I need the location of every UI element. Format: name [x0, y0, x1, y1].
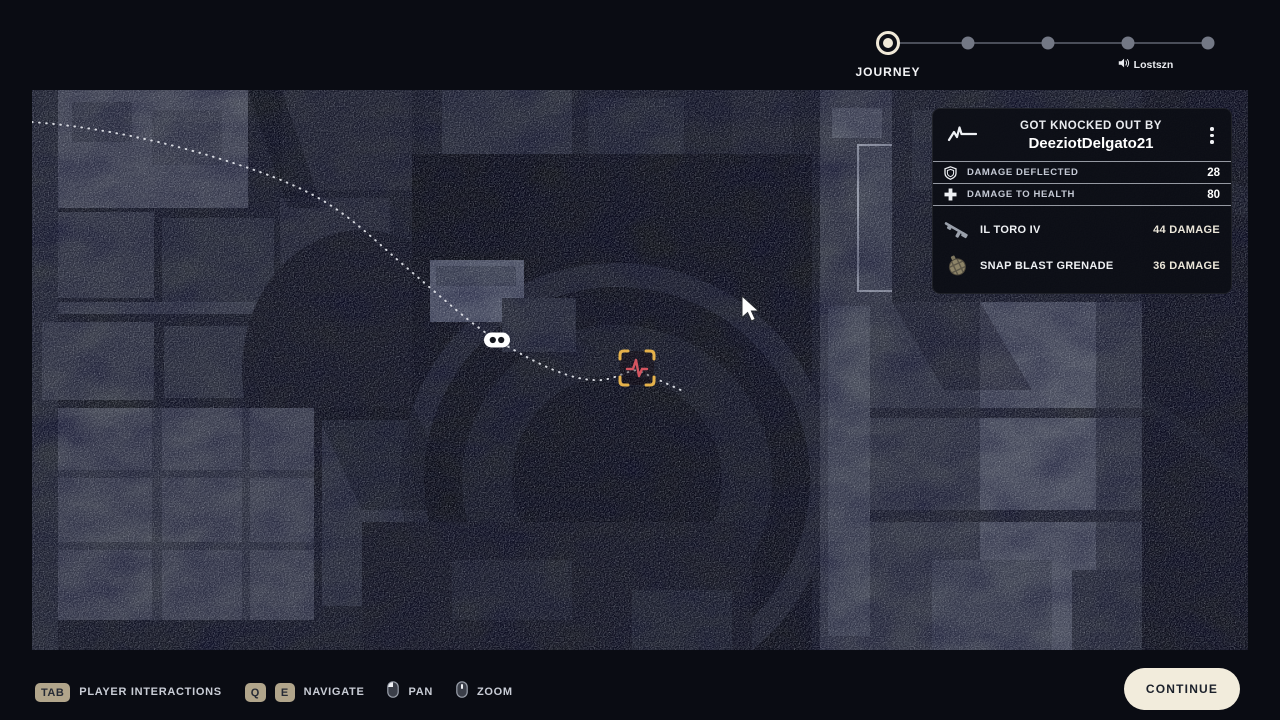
timeline-step-journey[interactable] — [876, 31, 900, 55]
stat-value: 80 — [1207, 189, 1220, 201]
weapons-list: IL TORO IV 44 DAMAGE SNAP BLAST GRENADE — [933, 205, 1231, 293]
weapon-name: SNAP BLAST GRENADE — [980, 260, 1145, 272]
weapon-row: SNAP BLAST GRENADE 36 DAMAGE — [942, 252, 1220, 280]
tab-keycap: TAB — [35, 683, 70, 702]
grenade-icon — [942, 253, 972, 279]
shield-icon — [944, 166, 958, 180]
journey-timeline — [876, 31, 1220, 55]
rifle-icon — [942, 217, 972, 243]
hint-player-interactions: TAB PLAYER INTERACTIONS — [35, 683, 222, 702]
stat-value: 28 — [1207, 167, 1220, 179]
knockout-panel: GOT KNOCKED OUT BY DeeziotDelgato21 DAMA… — [932, 108, 1232, 294]
hint-label: PLAYER INTERACTIONS — [79, 686, 221, 698]
audio-player-name: Lostszn — [1134, 59, 1174, 71]
weapon-damage: 44 DAMAGE — [1153, 224, 1220, 236]
weapon-damage: 36 DAMAGE — [1153, 260, 1220, 272]
pulse-icon — [947, 119, 979, 152]
mouse-pan-icon — [387, 681, 399, 703]
stat-row-damage-to-health: DAMAGE TO HEALTH 80 — [933, 183, 1231, 205]
q-keycap: Q — [245, 683, 266, 702]
stat-label: DAMAGE DEFLECTED — [967, 167, 1198, 178]
weapon-row: IL TORO IV 44 DAMAGE — [942, 216, 1220, 244]
audio-player-label: Lostszn — [1119, 58, 1174, 71]
kebab-menu-icon[interactable] — [1205, 125, 1219, 146]
knockout-panel-header: GOT KNOCKED OUT BY DeeziotDelgato21 — [933, 109, 1231, 161]
timeline-step-3[interactable] — [1042, 37, 1055, 50]
timeline-active-label: JOURNEY — [855, 65, 920, 79]
killer-player-name: DeeziotDelgato21 — [979, 135, 1203, 152]
continue-button[interactable]: CONTINUE — [1124, 668, 1240, 710]
mouse-zoom-icon — [456, 681, 468, 703]
stat-label: DAMAGE TO HEALTH — [967, 189, 1198, 200]
keybind-hints-bar: TAB PLAYER INTERACTIONS Q E NAVIGATE PAN — [35, 681, 513, 703]
hint-navigate: Q E NAVIGATE — [245, 683, 365, 702]
timeline-step-5[interactable] — [1202, 37, 1215, 50]
hint-pan: PAN — [387, 681, 433, 703]
timeline-step-2[interactable] — [962, 37, 975, 50]
weapon-name: IL TORO IV — [980, 224, 1145, 236]
downed-player-marker — [484, 333, 510, 348]
stat-row-damage-deflected: DAMAGE DEFLECTED 28 — [933, 161, 1231, 183]
health-cross-icon — [944, 188, 958, 201]
hint-label: NAVIGATE — [304, 686, 365, 698]
death-recap-screen: JOURNEY Lostszn — [0, 0, 1280, 720]
hint-label: PAN — [408, 686, 433, 698]
hint-zoom: ZOOM — [456, 681, 513, 703]
knockout-event-marker[interactable] — [620, 351, 654, 385]
timeline-step-4[interactable] — [1122, 37, 1135, 50]
e-keycap: E — [275, 683, 295, 702]
knockout-title: GOT KNOCKED OUT BY — [979, 120, 1203, 132]
hint-label: ZOOM — [477, 686, 513, 698]
speaker-icon — [1119, 58, 1130, 71]
